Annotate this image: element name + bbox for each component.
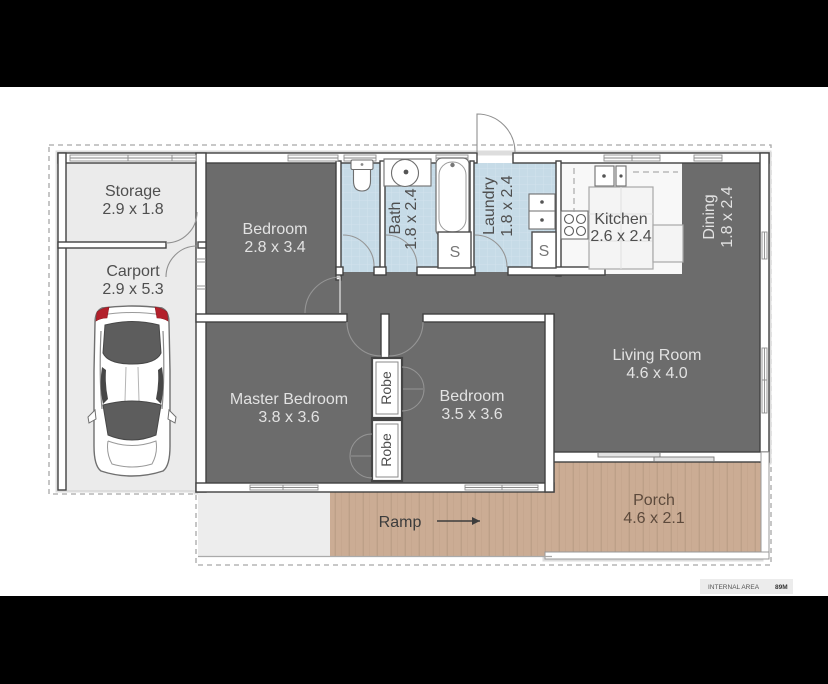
svg-text:INTERNAL AREA: INTERNAL AREA (708, 584, 760, 591)
svg-text:Master Bedroom: Master Bedroom (230, 391, 348, 408)
svg-text:Robe: Robe (378, 433, 394, 467)
svg-text:4.6 x 2.1: 4.6 x 2.1 (623, 510, 684, 527)
svg-text:3.5 x 3.6: 3.5 x 3.6 (441, 406, 502, 423)
svg-text:89M: 89M (775, 584, 788, 591)
svg-text:S: S (450, 244, 461, 261)
svg-text:Bedroom: Bedroom (243, 221, 308, 238)
svg-text:1.8 x 2.4: 1.8 x 2.4 (719, 186, 736, 247)
svg-text:2.9 x 5.3: 2.9 x 5.3 (102, 281, 163, 298)
svg-text:1.8 x 2.4: 1.8 x 2.4 (499, 175, 516, 236)
svg-text:2.8 x 3.4: 2.8 x 3.4 (244, 239, 305, 256)
svg-text:Storage: Storage (105, 183, 161, 200)
svg-text:Dining: Dining (701, 194, 718, 239)
svg-text:Bedroom: Bedroom (440, 388, 505, 405)
svg-text:3.8 x 3.6: 3.8 x 3.6 (258, 409, 319, 426)
svg-text:Robe: Robe (378, 371, 394, 405)
svg-text:1.8 x 2.4: 1.8 x 2.4 (403, 188, 420, 249)
svg-text:S: S (539, 243, 550, 260)
svg-text:2.6 x 2.4: 2.6 x 2.4 (590, 228, 651, 245)
svg-text:Laundry: Laundry (481, 177, 498, 235)
svg-text:Carport: Carport (106, 263, 160, 280)
svg-text:4.6 x 4.0: 4.6 x 4.0 (626, 365, 687, 382)
svg-text:2.9 x 1.8: 2.9 x 1.8 (102, 201, 163, 218)
svg-text:Kitchen: Kitchen (594, 211, 647, 228)
svg-text:Ramp: Ramp (379, 514, 422, 531)
svg-text:Porch: Porch (633, 492, 675, 509)
svg-text:Living Room: Living Room (613, 347, 702, 364)
svg-text:Bath: Bath (387, 202, 404, 235)
